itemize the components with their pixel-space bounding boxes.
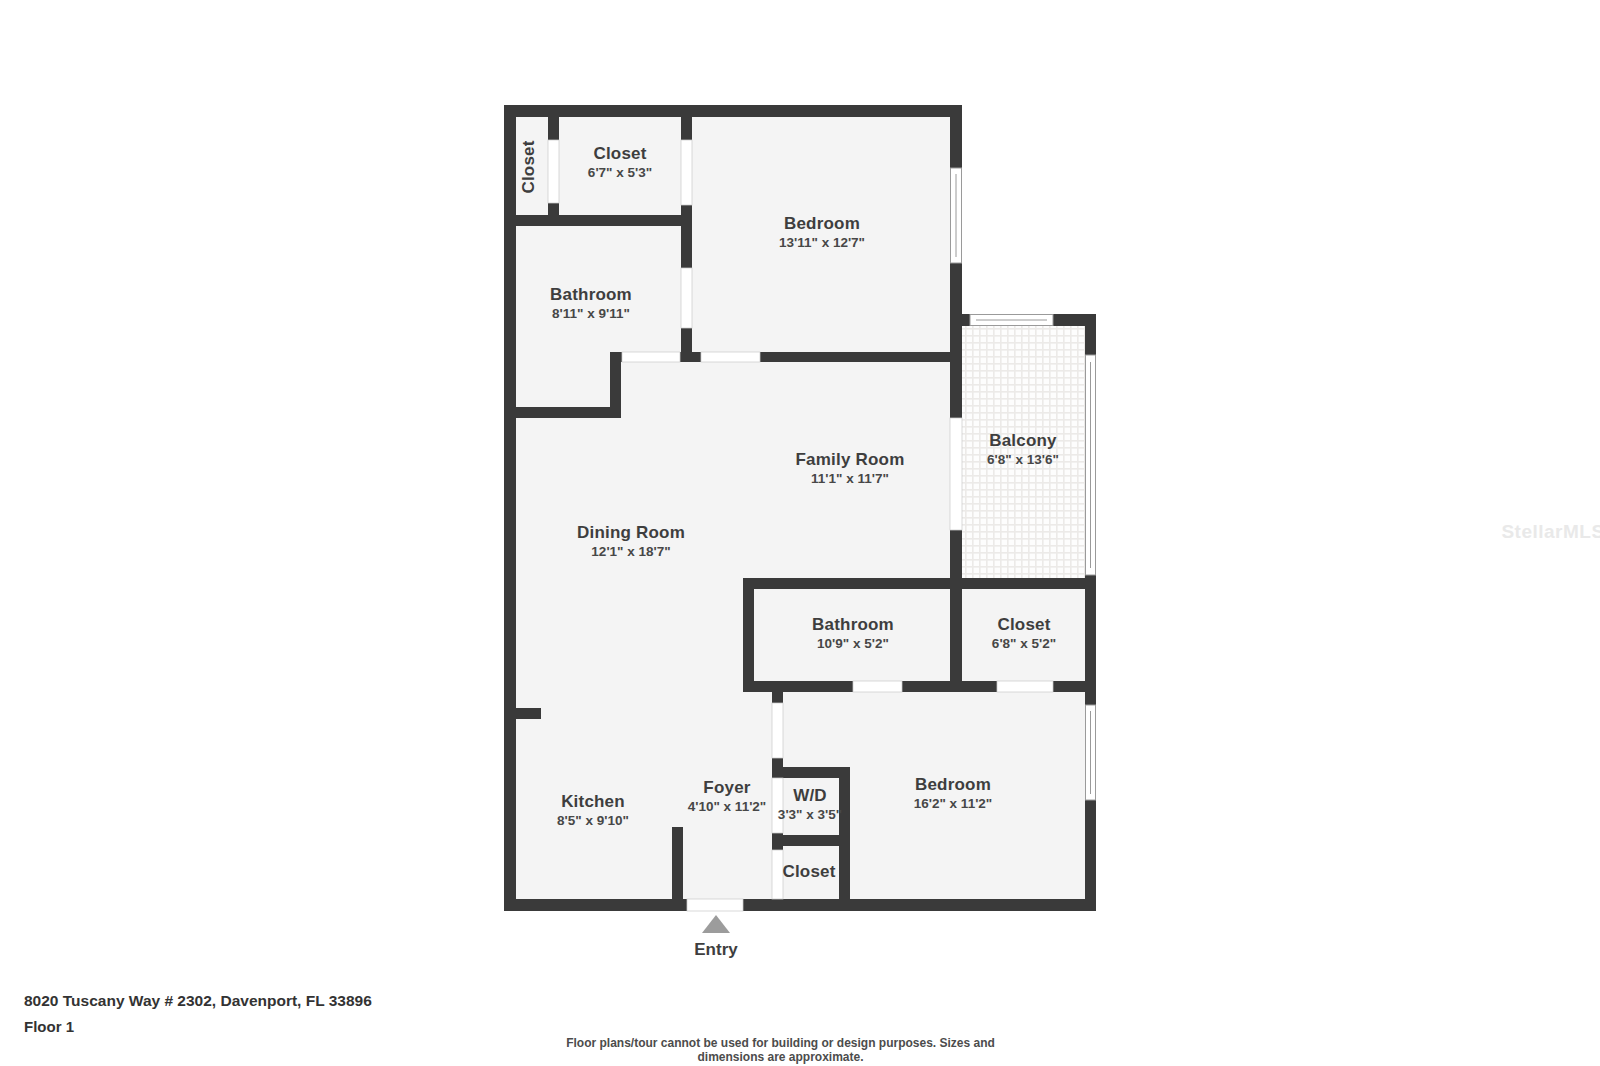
address-text: 8020 Tuscany Way # 2302, Davenport, FL 3… [24,992,372,1010]
wall-master-divider-b [681,205,692,268]
room-name: Bathroom [550,285,632,305]
room-name: Closet [992,615,1056,635]
wall-bath2-bottom-b [902,681,997,692]
opening-hall-bath [622,352,680,362]
opening-hall-bedroom [701,352,760,362]
wall-kitchen-divider [672,827,683,911]
wall-kitchen-stub [504,708,541,719]
floorplan-drawing [0,0,1600,1066]
wall-bedroom-right-upper [950,105,962,168]
room-label-family-room: Family Room 11'1" x 11'7" [796,450,905,488]
room-name: Balcony [987,431,1059,451]
room-label-kitchen: Kitchen 8'5" x 9'10" [557,792,629,830]
wall-bath2-bottom-a [743,681,853,692]
door-closet-entry [772,850,783,899]
room-name: Bedroom [914,775,993,795]
room-dims: 4'10" x 11'2" [688,798,767,816]
room-label-closet-vertical: Closet [519,140,539,193]
wall-outer-top [504,105,962,117]
wall-closets-bottom [504,215,692,226]
room-dims: 8'11" x 9'11" [550,305,632,323]
wall-bath-bottom [504,407,621,418]
wall-bath2-bottom-c [1053,681,1096,692]
disclaimer-text: Floor plans/tour cannot be used for buil… [548,1036,1013,1064]
room-name: Foyer [688,778,767,798]
room-name: W/D [778,786,842,806]
wall-wd-top [772,767,850,778]
opening-entry [687,899,743,911]
room-name: Bathroom [812,615,894,635]
floorplan-page: Closet Closet 6'7" x 5'3" Bedroom 13'11"… [0,0,1600,1066]
room-label-bathroom-master: Bathroom 8'11" x 9'11" [550,285,632,323]
room-label-bathroom-second: Bathroom 10'9" x 5'2" [812,615,894,653]
room-label-closet-entry: Closet [782,862,835,882]
room-name: Closet [782,862,835,882]
door-bedroom2 [772,703,783,758]
wall-foyer-stub [772,692,783,703]
wall-master-divider-a [681,117,692,140]
room-dims: 10'9" x 5'2" [812,635,894,653]
room-name: Dining Room [577,523,685,543]
door-bathroom-master [681,268,692,328]
room-dims: 13'11" x 12'7" [779,234,865,252]
watermark: StellarMLS [1501,521,1600,543]
room-dims: 16'2" x 11'2" [914,795,993,813]
wall-balcony-top-left [950,314,970,326]
entry-label: Entry [694,940,737,960]
room-label-bedroom-second: Bedroom 16'2" x 11'2" [914,775,993,813]
room-label-foyer: Foyer 4'10" x 11'2" [688,778,767,816]
room-dims: 11'1" x 11'7" [796,470,905,488]
wall-familyroom-top [760,352,962,362]
room-name: Family Room [796,450,905,470]
room-dims: 3'3" x 3'5" [778,806,842,824]
wall-bath2-top [743,578,1096,589]
entry-arrow-icon [702,915,730,933]
room-name: Closet [519,140,539,193]
room-label-dining-room: Dining Room 12'1" x 18'7" [577,523,685,561]
wall-hall-stub-a [610,352,622,362]
wall-hall-stub-b [680,352,701,362]
room-name: Closet [588,144,652,164]
door-bathroom2 [853,681,902,692]
wall-balcony-divider-lower [950,530,962,692]
room-name: Bedroom [779,214,865,234]
room-dims: 12'1" x 18'7" [577,543,685,561]
room-dims: 6'8" x 13'6" [987,451,1059,469]
room-label-bedroom-master: Bedroom 13'11" x 12'7" [779,214,865,252]
room-dims: 8'5" x 9'10" [557,812,629,830]
room-dims: 6'8" x 5'2" [992,635,1056,653]
wall-outer-right-a [1085,314,1096,355]
room-name: Kitchen [557,792,629,812]
wall-closetv-right-a [548,117,559,140]
wall-wd-bottom [772,835,850,846]
wall-balcony-divider-upper [950,326,962,418]
door-balcony [950,418,962,530]
door-closetv [548,140,559,203]
wall-outer-bottom-right [743,899,1096,911]
room-label-closet-master: Closet 6'7" x 5'3" [588,144,652,182]
wall-outer-right-c [1085,800,1096,911]
door-closet-master [681,140,692,205]
wall-outer-bottom-left [504,899,687,911]
room-label-wd: W/D 3'3" x 3'5" [778,786,842,824]
door-closet2 [997,681,1053,692]
floor-number-text: Floor 1 [24,1018,74,1035]
room-label-closet-second: Closet 6'8" x 5'2" [992,615,1056,653]
wall-bath2-left [743,578,754,692]
room-dims: 6'7" x 5'3" [588,164,652,182]
room-label-balcony: Balcony 6'8" x 13'6" [987,431,1059,469]
